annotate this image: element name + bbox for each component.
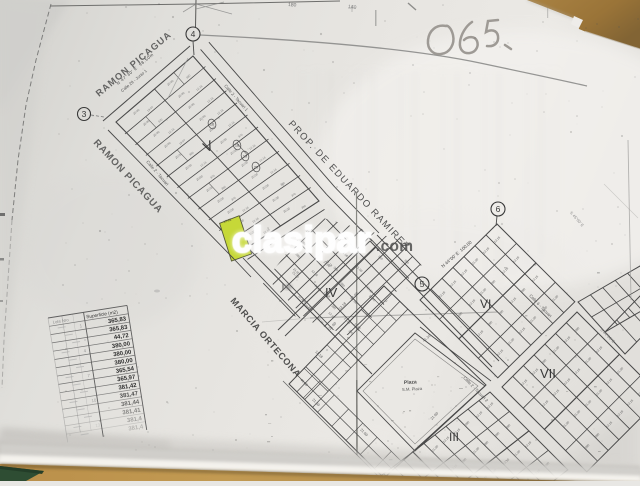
- svg-text:III: III: [449, 430, 459, 444]
- svg-text:.com: .com: [376, 238, 413, 255]
- svg-text:IV: IV: [325, 285, 338, 300]
- svg-text:Plaza: Plaza: [404, 379, 417, 386]
- svg-text:4: 4: [191, 29, 196, 39]
- svg-text:6: 6: [496, 204, 501, 214]
- svg-text:20: 20: [254, 166, 258, 170]
- svg-text:VI: VI: [480, 297, 491, 311]
- svg-text:5: 5: [420, 279, 425, 289]
- svg-text:18: 18: [235, 144, 239, 148]
- svg-text:clasipar: clasipar: [232, 219, 371, 260]
- svg-text:19: 19: [243, 155, 247, 159]
- svg-text:16: 16: [210, 123, 214, 127]
- svg-text:VII: VII: [540, 366, 556, 381]
- svg-text:180: 180: [288, 2, 297, 9]
- svg-text:140: 140: [348, 4, 357, 11]
- svg-text:3: 3: [82, 109, 87, 119]
